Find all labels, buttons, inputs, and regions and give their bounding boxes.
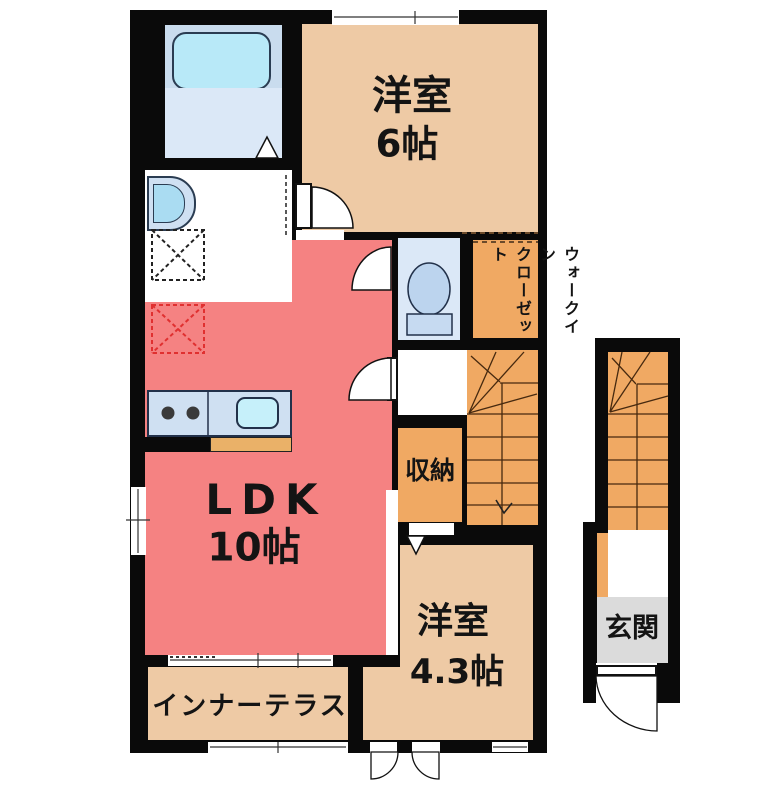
- kitchen-floor-strip: [210, 437, 292, 452]
- western-room-43-size: 4.3帖: [410, 655, 504, 691]
- main-stairs: [467, 350, 538, 525]
- floor-plan: ウォークイン クローゼット 収納: [0, 0, 781, 800]
- annex-hall-floor: [608, 530, 668, 597]
- kitchen-sink: [236, 397, 279, 429]
- terrace-door-swing-left: [371, 752, 398, 779]
- entrance-door-leaf: [596, 665, 657, 676]
- ldk-size: 10帖: [207, 529, 300, 570]
- bathtub: [172, 32, 271, 90]
- window-ldk-terrace: [168, 655, 333, 666]
- storage-label: 収納: [405, 458, 455, 484]
- western-room-6-size: 6帖: [376, 126, 439, 165]
- window-top: [332, 10, 459, 25]
- sliding-door-strip: [386, 490, 398, 655]
- western-room-43-label: 洋室: [417, 603, 489, 641]
- entrance-label: 玄関: [605, 615, 659, 643]
- walk-in-closet-label-line2: クローゼット: [486, 246, 534, 342]
- walk-in-closet-label: ウォークイン クローゼット: [486, 246, 582, 342]
- window-left: [131, 487, 146, 555]
- annex-wall-notch: [583, 338, 595, 522]
- stair-hall-floor: [398, 350, 467, 415]
- window-bottom-right: [492, 742, 528, 752]
- walk-in-closet-label-line1: ウォークイン: [534, 246, 582, 342]
- annex-stairs: [608, 352, 668, 530]
- western-room-43-floor-ext: [363, 667, 400, 740]
- double-door-opening-right: [412, 742, 440, 753]
- toilet-room-floor: [398, 238, 460, 340]
- ldk-hall-door-leaf: [387, 357, 398, 401]
- western-room-6-door-leaf: [295, 183, 312, 229]
- window-terrace-bottom: [208, 742, 348, 753]
- storage-door-opening: [409, 523, 454, 535]
- ldk-floor-corridor: [292, 240, 392, 655]
- western-room-6-label: 洋室: [372, 75, 452, 117]
- bathroom-floor: [165, 88, 282, 158]
- kitchen-wall-stub: [145, 437, 210, 452]
- annex-hall-strip: [597, 533, 608, 597]
- inner-terrace-label: インナーテラス: [152, 693, 347, 720]
- terrace-door-swing-right: [412, 752, 439, 779]
- washbasin-bowl: [153, 184, 185, 223]
- double-door-opening-left: [370, 742, 397, 753]
- ldk-label: LDK: [205, 478, 326, 522]
- western-room-43-floor: [400, 545, 533, 740]
